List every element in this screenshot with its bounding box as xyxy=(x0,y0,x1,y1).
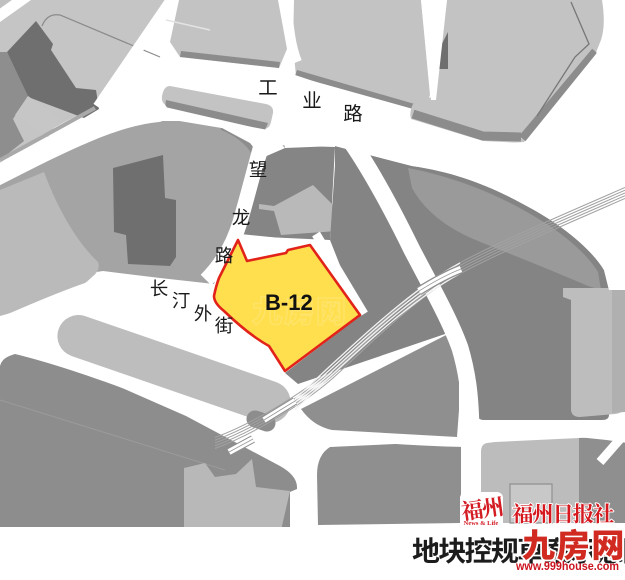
svg-text:www.999house.com: www.999house.com xyxy=(515,561,619,573)
svg-text:News & Life: News & Life xyxy=(464,520,499,527)
svg-text:B-12: B-12 xyxy=(265,290,313,315)
